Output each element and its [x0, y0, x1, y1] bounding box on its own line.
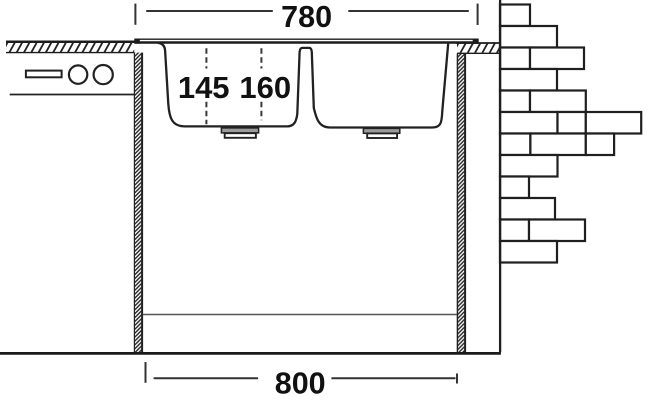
- svg-text:145: 145: [178, 70, 230, 105]
- svg-text:780: 780: [281, 0, 332, 34]
- svg-text:160: 160: [239, 70, 291, 105]
- svg-text:800: 800: [275, 367, 326, 400]
